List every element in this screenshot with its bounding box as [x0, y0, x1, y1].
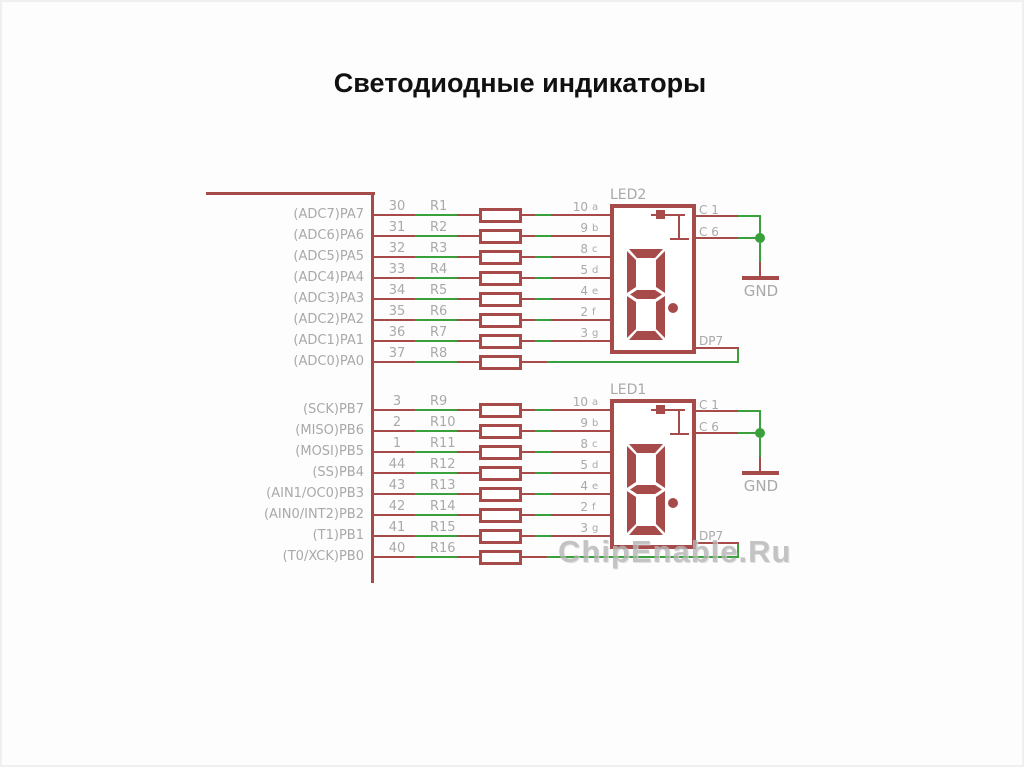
wire-segment	[457, 535, 481, 537]
wire-segment	[520, 319, 535, 321]
segment-letter: e	[592, 286, 598, 297]
mcu-outline-top	[206, 192, 375, 195]
resistor-label: R6	[430, 304, 447, 319]
resistor-label: R11	[430, 436, 456, 451]
wire-segment	[415, 214, 457, 216]
wire-segment	[520, 256, 535, 258]
wire-segment	[535, 277, 551, 279]
mcu-pin-number: 35	[376, 304, 418, 319]
mcu-port-label: (ADC4)PA4	[132, 270, 364, 285]
gnd-label: GND	[738, 282, 784, 300]
wire-segment	[373, 361, 415, 363]
wire-segment	[373, 493, 415, 495]
segment-pad-number: 4	[550, 284, 588, 298]
segment-letter: c	[592, 439, 598, 450]
wire-segment	[520, 298, 535, 300]
polarity-line	[670, 238, 689, 240]
segment-pad-number: 9	[550, 416, 588, 430]
wire-segment	[535, 298, 551, 300]
wire-segment	[415, 340, 457, 342]
polarity-arrow	[656, 405, 665, 414]
resistor-body	[479, 313, 522, 328]
wire-segment	[457, 556, 481, 558]
wire-segment	[535, 472, 551, 474]
wire-segment	[415, 556, 457, 558]
resistor-body	[479, 334, 522, 349]
resistor-label: R12	[430, 457, 456, 472]
wire-segment	[373, 451, 415, 453]
display-label: LED2	[610, 187, 646, 203]
wire-segment	[551, 514, 610, 516]
resistor-label: R4	[430, 262, 447, 277]
pin-stub	[696, 432, 738, 434]
net-wire	[738, 215, 761, 217]
wire-segment	[373, 535, 415, 537]
resistor-label: R14	[430, 499, 456, 514]
wire-segment	[520, 361, 547, 363]
wire-segment	[520, 472, 535, 474]
net-wire	[737, 349, 739, 363]
resistor-body	[479, 208, 522, 223]
polarity-arrow	[656, 210, 665, 219]
segment-pad-number: 4	[550, 479, 588, 493]
segment-letter: a	[592, 397, 598, 408]
resistor-label: R15	[430, 520, 456, 535]
wire-segment	[551, 472, 610, 474]
wire-segment	[373, 430, 415, 432]
segment-letter: g	[592, 523, 598, 534]
wire-segment	[520, 235, 535, 237]
pin-label-dp7: DP7	[699, 334, 723, 348]
resistor-label: R2	[430, 220, 447, 235]
mcu-port-label: (ADC2)PA2	[132, 312, 364, 327]
segment-pad-number: 9	[550, 221, 588, 235]
wire-segment	[457, 277, 481, 279]
mcu-pin-number: 33	[376, 262, 418, 277]
mcu-port-label: (MISO)PB6	[132, 423, 364, 438]
wire-segment	[373, 235, 415, 237]
resistor-body	[479, 424, 522, 439]
wire-segment	[415, 361, 457, 363]
wire-segment	[373, 298, 415, 300]
wire-segment	[415, 430, 457, 432]
wire-segment	[520, 514, 535, 516]
mcu-port-label: (ADC6)PA6	[132, 228, 364, 243]
resistor-label: R9	[430, 394, 447, 409]
display-label: LED1	[610, 382, 646, 398]
watermark: ChipEnable.Ru	[558, 534, 791, 570]
resistor-body	[479, 550, 522, 565]
resistor-body	[479, 355, 522, 370]
wire-segment	[415, 472, 457, 474]
wire-segment	[535, 430, 551, 432]
segment-pad-number: 2	[550, 305, 588, 319]
segment-letter: a	[592, 202, 598, 213]
segment-letter: d	[592, 460, 598, 471]
wire-segment	[373, 472, 415, 474]
wire-segment	[457, 298, 481, 300]
segment-pad-number: 2	[550, 500, 588, 514]
mcu-pin-number: 34	[376, 283, 418, 298]
wire-segment	[535, 319, 551, 321]
wire-segment	[457, 451, 481, 453]
resistor-body	[479, 250, 522, 265]
wire-segment	[535, 409, 551, 411]
gnd-symbol	[742, 276, 779, 280]
mcu-pin-number: 42	[376, 499, 418, 514]
polarity-line	[678, 409, 680, 434]
pin-stub	[696, 410, 738, 412]
mcu-pin-number: 37	[376, 346, 418, 361]
wire-segment	[457, 430, 481, 432]
wire-segment	[373, 514, 415, 516]
wire-segment	[551, 319, 610, 321]
segment-pad-number: 5	[550, 458, 588, 472]
wire-segment	[415, 493, 457, 495]
wire-segment	[457, 361, 481, 363]
resistor-label: R8	[430, 346, 447, 361]
wire-segment	[415, 451, 457, 453]
mcu-port-label: (AIN1/OC0)PB3	[132, 486, 364, 501]
wire-segment	[520, 493, 535, 495]
segment-pad-number: 3	[550, 521, 588, 535]
segment-letter: c	[592, 244, 598, 255]
wire-segment	[415, 298, 457, 300]
segment-pad-number: 10	[550, 200, 588, 214]
mcu-pin-number: 31	[376, 220, 418, 235]
pin-stub	[696, 347, 739, 349]
gnd-label: GND	[738, 477, 784, 495]
wire-segment	[551, 235, 610, 237]
mcu-port-label: (ADC3)PA3	[132, 291, 364, 306]
wire-segment	[457, 214, 481, 216]
wire-segment	[551, 277, 610, 279]
wire-segment	[457, 235, 481, 237]
segment-pad-number: 8	[550, 242, 588, 256]
slide-title: Светодиодные индикаторы	[2, 68, 1024, 99]
wire-segment	[415, 235, 457, 237]
mcu-port-label: (SS)PB4	[132, 465, 364, 480]
polarity-line	[670, 433, 689, 435]
wire-segment	[535, 514, 551, 516]
mcu-pin-number: 44	[376, 457, 418, 472]
pin-stub	[696, 215, 738, 217]
mcu-port-label: (MOSI)PB5	[132, 444, 364, 459]
wire-segment	[457, 514, 481, 516]
wire-segment	[520, 277, 535, 279]
wire-segment	[551, 430, 610, 432]
resistor-label: R5	[430, 283, 447, 298]
wire-segment	[520, 214, 535, 216]
wire-segment	[415, 535, 457, 537]
mcu-port-label: (ADC0)PA0	[132, 354, 364, 369]
wire-segment	[373, 409, 415, 411]
polarity-line	[678, 214, 680, 239]
mcu-port-label: (ADC7)PA7	[132, 207, 364, 222]
segment-letter: f	[592, 502, 596, 513]
wire-segment	[551, 214, 610, 216]
mcu-port-label: (T1)PB1	[132, 528, 364, 543]
segment-pad-number: 3	[550, 326, 588, 340]
wire-segment	[535, 235, 551, 237]
mcu-pin-number: 32	[376, 241, 418, 256]
wire-segment	[551, 340, 610, 342]
segment-letter: e	[592, 481, 598, 492]
wire-segment	[457, 409, 481, 411]
segment-pad-number: 5	[550, 263, 588, 277]
decimal-point-dot	[668, 498, 678, 508]
wire-segment	[373, 319, 415, 321]
wire-segment	[415, 514, 457, 516]
mcu-outline-right	[371, 192, 374, 583]
gnd-symbol	[742, 471, 779, 475]
resistor-body	[479, 508, 522, 523]
wire-segment	[535, 214, 551, 216]
segment-letter: g	[592, 328, 598, 339]
resistor-body	[479, 271, 522, 286]
slide: Светодиодные индикаторы (ADC7)PA730R110a…	[0, 0, 1024, 767]
junction-dot	[755, 428, 765, 438]
mcu-pin-number: 36	[376, 325, 418, 340]
resistor-label: R1	[430, 199, 447, 214]
digit-eight	[627, 444, 665, 535]
wire-segment	[373, 340, 415, 342]
wire-segment	[457, 340, 481, 342]
resistor-label: R7	[430, 325, 447, 340]
wire-segment	[457, 493, 481, 495]
mcu-pin-number: 1	[376, 436, 418, 451]
decimal-point-dot	[668, 303, 678, 313]
wire-segment	[520, 535, 535, 537]
wire-segment	[535, 256, 551, 258]
digit-eight	[627, 249, 665, 340]
net-wire	[738, 410, 761, 412]
resistor-body	[479, 466, 522, 481]
wire-segment	[551, 451, 610, 453]
wire-segment	[457, 256, 481, 258]
wire-segment	[535, 451, 551, 453]
segment-pad-number: 10	[550, 395, 588, 409]
wire-segment	[520, 430, 535, 432]
wire-segment	[551, 493, 610, 495]
segment-letter: f	[592, 307, 596, 318]
wire-segment	[535, 535, 551, 537]
wire-segment	[535, 493, 551, 495]
pin-stub	[696, 237, 738, 239]
wire-segment	[551, 256, 610, 258]
resistor-body	[479, 229, 522, 244]
resistor-label: R16	[430, 541, 456, 556]
wire-segment	[373, 256, 415, 258]
resistor-label: R3	[430, 241, 447, 256]
mcu-port-label: (ADC5)PA5	[132, 249, 364, 264]
mcu-pin-number: 41	[376, 520, 418, 535]
resistor-body	[479, 529, 522, 544]
wire-segment	[373, 277, 415, 279]
segment-letter: d	[592, 265, 598, 276]
wire-segment	[373, 556, 415, 558]
mcu-port-label: (AIN0/INT2)PB2	[132, 507, 364, 522]
mcu-port-label: (SCK)PB7	[132, 402, 364, 417]
wire-segment	[520, 340, 535, 342]
resistor-body	[479, 403, 522, 418]
wire-segment	[457, 472, 481, 474]
segment-letter: b	[592, 418, 598, 429]
wire-segment	[547, 361, 739, 363]
wire-segment	[415, 256, 457, 258]
wire-segment	[551, 298, 610, 300]
wire-segment	[551, 409, 610, 411]
mcu-pin-number: 30	[376, 199, 418, 214]
wire-segment	[535, 340, 551, 342]
wire-segment	[373, 214, 415, 216]
resistor-label: R13	[430, 478, 456, 493]
wire-segment	[415, 277, 457, 279]
wire-segment	[520, 556, 547, 558]
gnd-lead	[759, 262, 761, 276]
mcu-pin-number: 43	[376, 478, 418, 493]
junction-dot	[755, 233, 765, 243]
resistor-body	[479, 445, 522, 460]
segment-pad-number: 8	[550, 437, 588, 451]
wire-segment	[520, 451, 535, 453]
mcu-pin-number: 40	[376, 541, 418, 556]
mcu-pin-number: 2	[376, 415, 418, 430]
segment-letter: b	[592, 223, 598, 234]
resistor-body	[479, 487, 522, 502]
mcu-port-label: (T0/XCK)PB0	[132, 549, 364, 564]
net-wire	[759, 243, 761, 262]
wire-segment	[520, 409, 535, 411]
wire-segment	[415, 319, 457, 321]
wire-segment	[457, 319, 481, 321]
wire-segment	[415, 409, 457, 411]
mcu-port-label: (ADC1)PA1	[132, 333, 364, 348]
net-wire	[759, 438, 761, 457]
mcu-pin-number: 3	[376, 394, 418, 409]
gnd-lead	[759, 457, 761, 471]
resistor-label: R10	[430, 415, 456, 430]
resistor-body	[479, 292, 522, 307]
